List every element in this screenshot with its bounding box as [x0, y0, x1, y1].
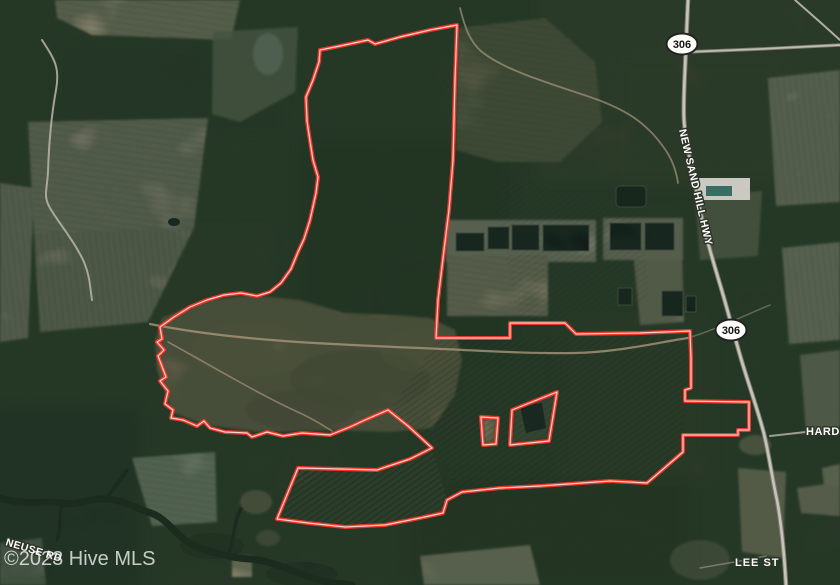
grain-texture [0, 0, 840, 585]
route-shield-306-south-number: 306 [722, 325, 740, 337]
route-shield-306-south: 306 [716, 320, 747, 341]
satellite-map[interactable]: NEW SAND HILL HWY HARDIS LEE ST NEUSE RD… [0, 0, 840, 585]
map-canvas: NEW SAND HILL HWY HARDIS LEE ST NEUSE RD… [0, 0, 840, 585]
route-shield-306-north: 306 [667, 34, 698, 55]
route-shield-306-north-number: 306 [673, 39, 691, 51]
road-label-hardison: HARDIS [806, 426, 840, 438]
road-label-lee-st: LEE ST [735, 557, 780, 569]
attribution-watermark: ©2023 Hive MLS [4, 548, 155, 570]
